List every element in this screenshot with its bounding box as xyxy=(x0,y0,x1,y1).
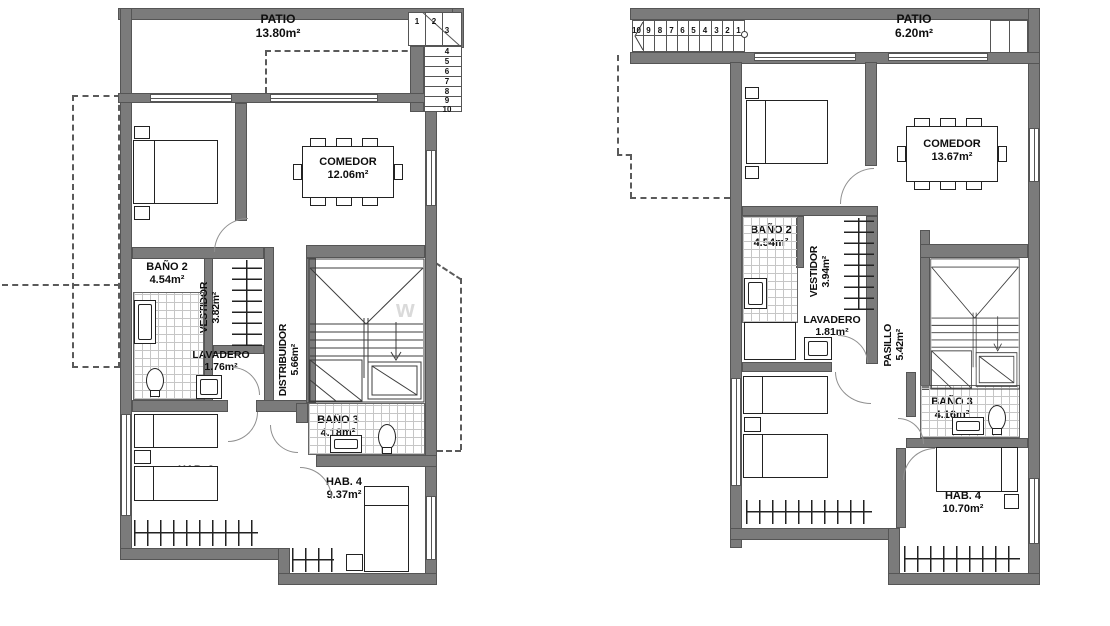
stair-tread xyxy=(666,20,667,52)
chair xyxy=(966,181,982,190)
projection-outline xyxy=(617,154,631,156)
shower-tray xyxy=(744,322,796,360)
window xyxy=(888,53,988,61)
stair-number: 7 xyxy=(666,26,677,35)
door-swing xyxy=(903,448,935,480)
wardrobe xyxy=(844,218,874,310)
closet xyxy=(746,500,872,524)
projection-outline xyxy=(617,55,619,154)
window xyxy=(1029,128,1039,182)
stair-number: 2 xyxy=(722,26,733,35)
stairwell-graphic xyxy=(930,258,1020,390)
stair-direction-line xyxy=(636,35,742,36)
room-label-comedor: COMEDOR13.67m² xyxy=(906,138,998,163)
stair-number: 10 xyxy=(630,26,643,35)
stair-tread xyxy=(688,20,689,52)
room-label-patio: PATIO6.20m² xyxy=(882,13,946,41)
floor-plan-right: 10 9 8 7 6 5 4 3 2 1 PATIO6.20m² HAB. 21… xyxy=(0,0,1110,626)
stair-tread xyxy=(654,20,655,52)
stair-number: 5 xyxy=(688,26,699,35)
stair-tread xyxy=(722,20,723,52)
wall xyxy=(920,244,1028,258)
wall xyxy=(742,362,832,372)
stair-number: 3 xyxy=(711,26,722,35)
window xyxy=(731,378,741,486)
chair xyxy=(998,146,1007,162)
sink xyxy=(744,278,767,309)
nightstand xyxy=(1004,494,1019,509)
stair-tread xyxy=(699,20,700,52)
washing-machine xyxy=(804,337,832,360)
wall xyxy=(906,372,916,417)
wall xyxy=(865,62,877,166)
stair-tread xyxy=(677,20,678,52)
closet xyxy=(904,546,1020,572)
wall xyxy=(730,528,900,540)
bed xyxy=(743,376,828,414)
wall xyxy=(630,8,1040,20)
stair-number: 1 xyxy=(733,26,744,35)
projection-outline xyxy=(630,197,730,199)
room-label-lavadero: LAVADERO1.81m² xyxy=(800,314,864,338)
wall xyxy=(742,206,878,216)
bed xyxy=(746,100,828,164)
chair xyxy=(914,181,930,190)
bed xyxy=(936,447,1018,492)
wall xyxy=(896,448,906,528)
stair-arrow-icon xyxy=(632,20,646,52)
door-swing xyxy=(840,168,874,204)
bed xyxy=(743,434,828,478)
nightstand xyxy=(745,166,759,179)
nightstand xyxy=(744,417,761,432)
chair xyxy=(914,118,930,127)
room-label-hab4: HAB. 410.70m² xyxy=(934,490,992,515)
toilet xyxy=(988,405,1006,431)
door-swing xyxy=(838,335,868,363)
sink xyxy=(952,417,984,435)
chair xyxy=(897,146,906,162)
stair-number: 6 xyxy=(677,26,688,35)
window xyxy=(1029,478,1039,544)
window xyxy=(754,53,856,61)
stair-number: 4 xyxy=(699,26,711,35)
room-label-pasillo: PASILLO5.42m² xyxy=(882,312,906,378)
stair-tread xyxy=(711,20,712,52)
chair xyxy=(940,181,956,190)
room-label-vestidor: VESTIDOR3.94m² xyxy=(808,228,832,316)
door-swing xyxy=(835,372,871,404)
patio-opening xyxy=(990,20,1028,53)
stair-number: 9 xyxy=(643,26,654,35)
wall xyxy=(888,573,1040,585)
stair-tread xyxy=(733,20,734,52)
chair xyxy=(940,118,956,127)
nightstand xyxy=(745,87,759,99)
projection-outline xyxy=(630,154,632,198)
chair xyxy=(966,118,982,127)
stair-number: 8 xyxy=(654,26,666,35)
